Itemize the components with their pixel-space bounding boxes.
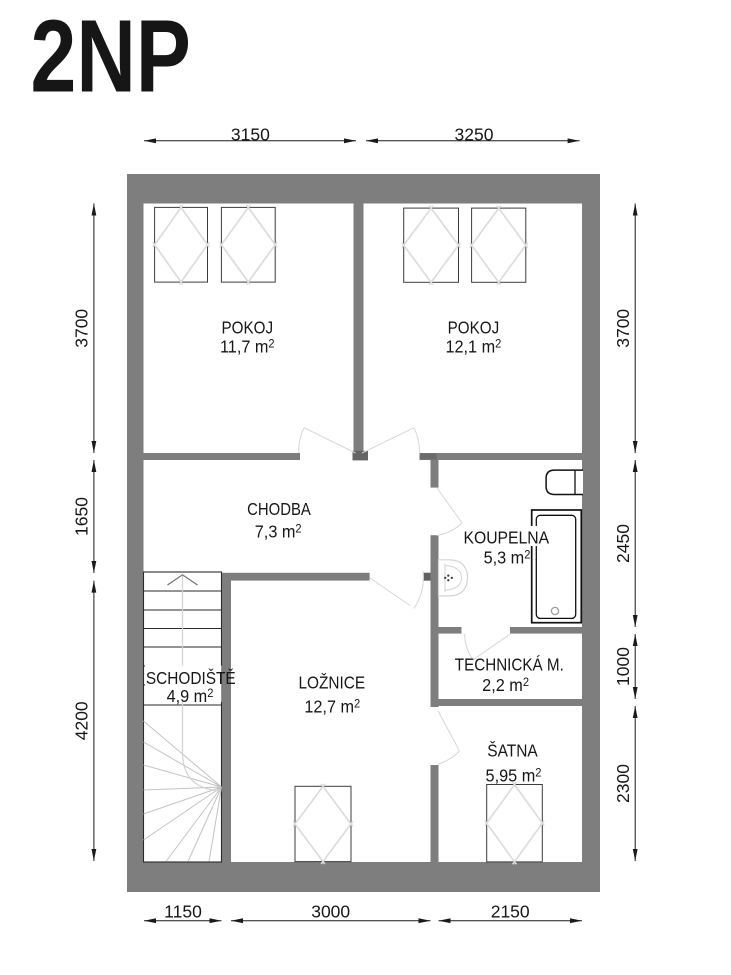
svg-text:12,7 m2: 12,7 m2 [304, 697, 360, 717]
svg-text:KOUPELNA: KOUPELNA [463, 528, 550, 548]
svg-text:5,3 m2: 5,3 m2 [484, 548, 531, 568]
svg-text:POKOJ: POKOJ [448, 318, 500, 337]
svg-text:3150: 3150 [231, 124, 270, 144]
svg-text:ŠATNA: ŠATNA [487, 741, 537, 761]
svg-text:11,7 m2: 11,7 m2 [220, 337, 275, 357]
svg-text:7,3 m2: 7,3 m2 [255, 522, 302, 542]
svg-text:1000: 1000 [613, 647, 633, 686]
svg-text:4,9 m2: 4,9 m2 [167, 687, 214, 707]
svg-text:3700: 3700 [613, 309, 633, 348]
svg-text:3000: 3000 [311, 902, 350, 922]
svg-text:2150: 2150 [491, 902, 530, 922]
svg-text:TECHNICKÁ M.: TECHNICKÁ M. [455, 654, 564, 674]
svg-text:LOŽNICE: LOŽNICE [298, 673, 365, 693]
svg-text:4200: 4200 [72, 701, 92, 740]
svg-text:1650: 1650 [72, 497, 92, 536]
svg-text:2,2 m2: 2,2 m2 [482, 676, 529, 696]
svg-text:3700: 3700 [72, 309, 92, 348]
svg-text:3250: 3250 [455, 124, 494, 144]
svg-text:2NP: 2NP [31, 0, 191, 114]
svg-text:2450: 2450 [613, 524, 633, 563]
svg-text:POKOJ: POKOJ [222, 318, 274, 337]
svg-text:2300: 2300 [613, 764, 633, 803]
svg-text:12,1 m2: 12,1 m2 [445, 337, 501, 357]
svg-text:1150: 1150 [164, 902, 202, 922]
svg-text:SCHODIŠTĚ: SCHODIŠTĚ [146, 668, 236, 688]
svg-text:CHODBA: CHODBA [247, 500, 311, 519]
svg-text:5,95 m2: 5,95 m2 [486, 766, 542, 786]
